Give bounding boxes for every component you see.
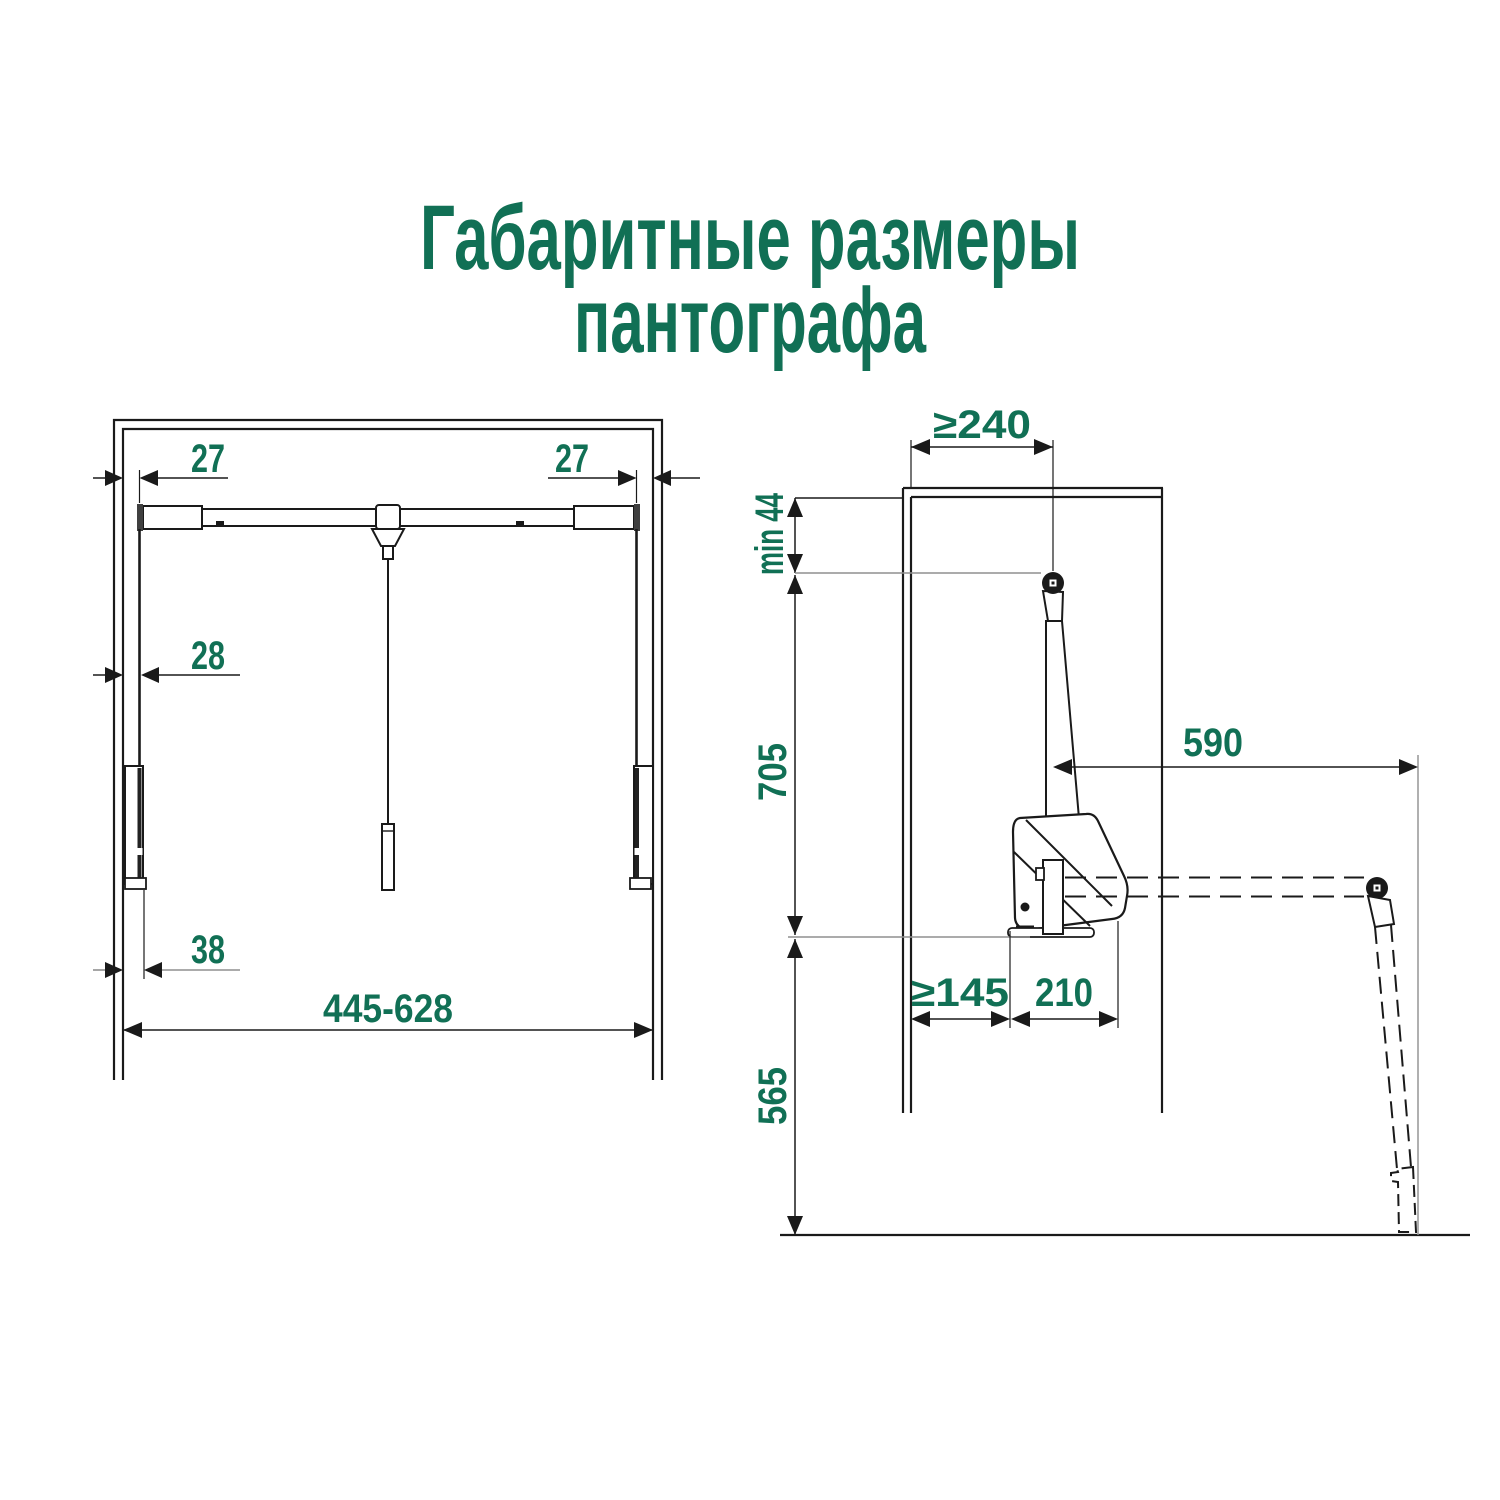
top-pivot <box>1042 572 1064 594</box>
cord-housing <box>372 505 404 559</box>
rod-clamp <box>1043 860 1063 934</box>
rod-left-cap <box>137 504 143 531</box>
dimension-drawing: Габаритные размеры пантографа <box>0 0 1500 1500</box>
rod-right-end-tube <box>574 506 634 529</box>
pull-grip-side <box>1391 1167 1416 1232</box>
right-bracket-front <box>630 766 653 889</box>
dim-depth-to-axis-label: ≥240 <box>933 403 1031 447</box>
mechanism-body <box>1008 814 1128 937</box>
dim-front-clearance-label: ≥145 <box>911 971 1009 1015</box>
page-title: Габаритные размеры пантографа <box>420 187 1080 372</box>
rod-right-cap <box>634 504 640 531</box>
dim-body-depth-label: 210 <box>1035 971 1093 1015</box>
left-bracket-front <box>125 766 146 889</box>
dim-width-range: 445-628 <box>123 987 653 1038</box>
dim-lower-height-label: 565 <box>751 1067 795 1125</box>
side-view: ≥240 min 44 705 565 590 <box>748 403 1470 1235</box>
dim-front-clearance: ≥145 <box>911 931 1010 1028</box>
rod-lowered-phantom <box>1368 896 1416 1232</box>
rod-mark-right <box>516 521 524 525</box>
rod-mark-left <box>216 521 224 525</box>
page-title-line2: пантографа <box>574 270 927 372</box>
dim-side-offset-label: 28 <box>191 634 225 678</box>
dim-rail-offset-label: 38 <box>191 928 225 972</box>
dim-top-right-offset-label: 27 <box>555 437 589 481</box>
hanging-rod-front <box>137 504 640 890</box>
dim-top-clearance-label: min 44 <box>748 493 792 575</box>
dim-upper-height-label: 705 <box>751 743 795 801</box>
dim-top-left-offset-label: 27 <box>191 437 225 481</box>
dim-arm-reach-label: 590 <box>1183 721 1243 765</box>
body-bolt <box>1021 903 1030 912</box>
dim-arm-reach: 590 <box>1053 721 1418 1235</box>
pull-grip-front <box>382 824 394 890</box>
rod-left-end-tube <box>143 506 202 529</box>
dim-top-right-offset: 27 <box>548 437 700 503</box>
dim-width-range-label: 445-628 <box>323 987 453 1031</box>
lift-arm-side <box>1043 591 1080 830</box>
drawing-page: Габаритные размеры пантографа <box>0 0 1500 1500</box>
front-view: 27 27 28 38 <box>93 420 700 1080</box>
